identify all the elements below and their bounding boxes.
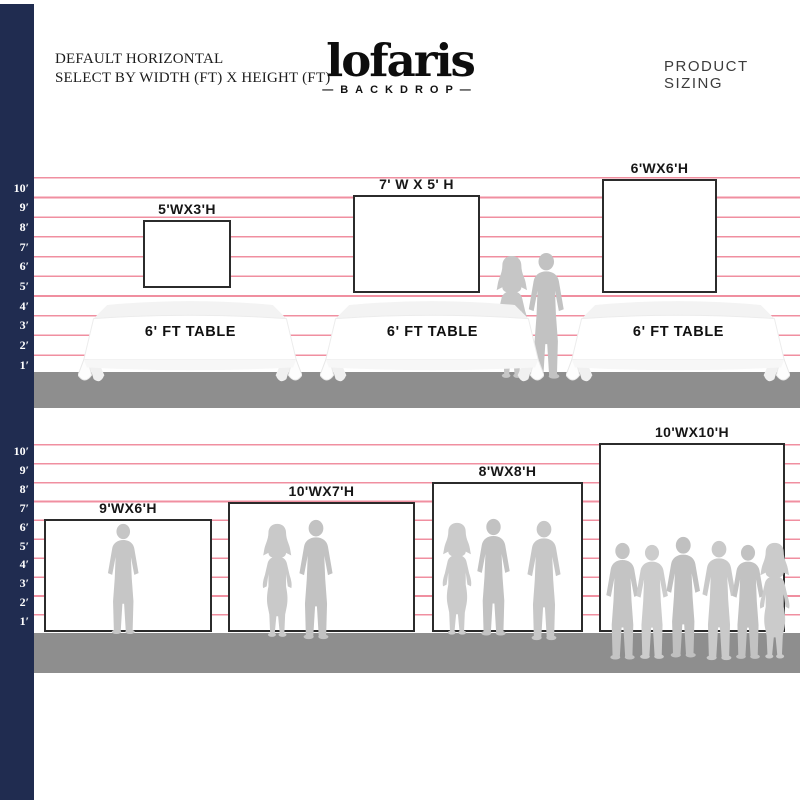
group-silhouette-three [437, 516, 585, 642]
product-sizing-chart: DEFAULT HORIZONTAL SELECT BY WIDTH (FT) … [0, 0, 800, 800]
ruler-tick-label: 3′ [1, 576, 29, 591]
ruler-bar: 10′9′8′7′6′5′4′3′2′1′ 10′9′8′7′6′5′4′3′2… [0, 4, 34, 800]
backdrop-label-10x10: 10'WX10'H [599, 424, 785, 440]
ruler-tick-label: 3′ [1, 318, 29, 333]
backdrop-label-5x3: 5'WX3'H [143, 201, 231, 217]
table-2 [320, 296, 544, 388]
couple-silhouette-10x7 [249, 519, 349, 641]
backdrop-5x3 [143, 220, 231, 288]
table-2-label: 6' FT TABLE [360, 324, 505, 340]
table-1 [78, 296, 302, 388]
ruler-tick-label: 5′ [1, 539, 29, 554]
ruler-tick-label: 7′ [1, 501, 29, 516]
ruler-tick-label: 4′ [1, 299, 29, 314]
backdrop-label-6x6: 6'WX6'H [602, 160, 717, 176]
person-silhouette-single [101, 523, 153, 637]
ruler-tick-label: 6′ [1, 259, 29, 274]
ruler-tick-label: 9′ [1, 463, 29, 478]
ruler-tick-label: 9′ [1, 200, 29, 215]
product-sizing-heading: PRODUCT SIZING [664, 58, 800, 92]
ruler-tick-label: 2′ [1, 338, 29, 353]
brand-logo: lofaris —BACKDROP— [300, 38, 500, 96]
backdrop-6x6 [602, 179, 717, 293]
title-line-2: SELECT BY WIDTH (FT) X HEIGHT (FT) [55, 69, 330, 88]
backdrop-7x5 [353, 195, 480, 293]
ruler-tick-label: 1′ [1, 614, 29, 629]
ruler-tick-label: 8′ [1, 482, 29, 497]
table-1-label: 6' FT TABLE [118, 324, 263, 340]
ruler-tick-label: 2′ [1, 595, 29, 610]
ruler-tick-label: 5′ [1, 279, 29, 294]
page-title: DEFAULT HORIZONTAL SELECT BY WIDTH (FT) … [55, 50, 330, 88]
brand-name: lofaris [300, 38, 500, 84]
ruler-tick-label: 10′ [1, 444, 29, 459]
group-silhouette-six [600, 532, 790, 662]
ruler-tick-label: 1′ [1, 358, 29, 373]
title-line-1: DEFAULT HORIZONTAL [55, 50, 330, 69]
table-3-label: 6' FT TABLE [606, 324, 751, 340]
table-3 [566, 296, 790, 388]
ruler-tick-label: 6′ [1, 520, 29, 535]
backdrop-label-7x5: 7' W X 5' H [353, 176, 480, 192]
backdrop-label-10x7: 10'WX7'H [228, 483, 415, 499]
ruler-tick-label: 7′ [1, 240, 29, 255]
ruler-tick-label: 10′ [1, 181, 29, 196]
backdrop-label-8x8: 8'WX8'H [432, 463, 583, 479]
brand-subtitle: —BACKDROP— [300, 84, 500, 96]
ruler-tick-label: 8′ [1, 220, 29, 235]
backdrop-label-9x6: 9'WX6'H [44, 500, 212, 516]
ruler-tick-label: 4′ [1, 557, 29, 572]
